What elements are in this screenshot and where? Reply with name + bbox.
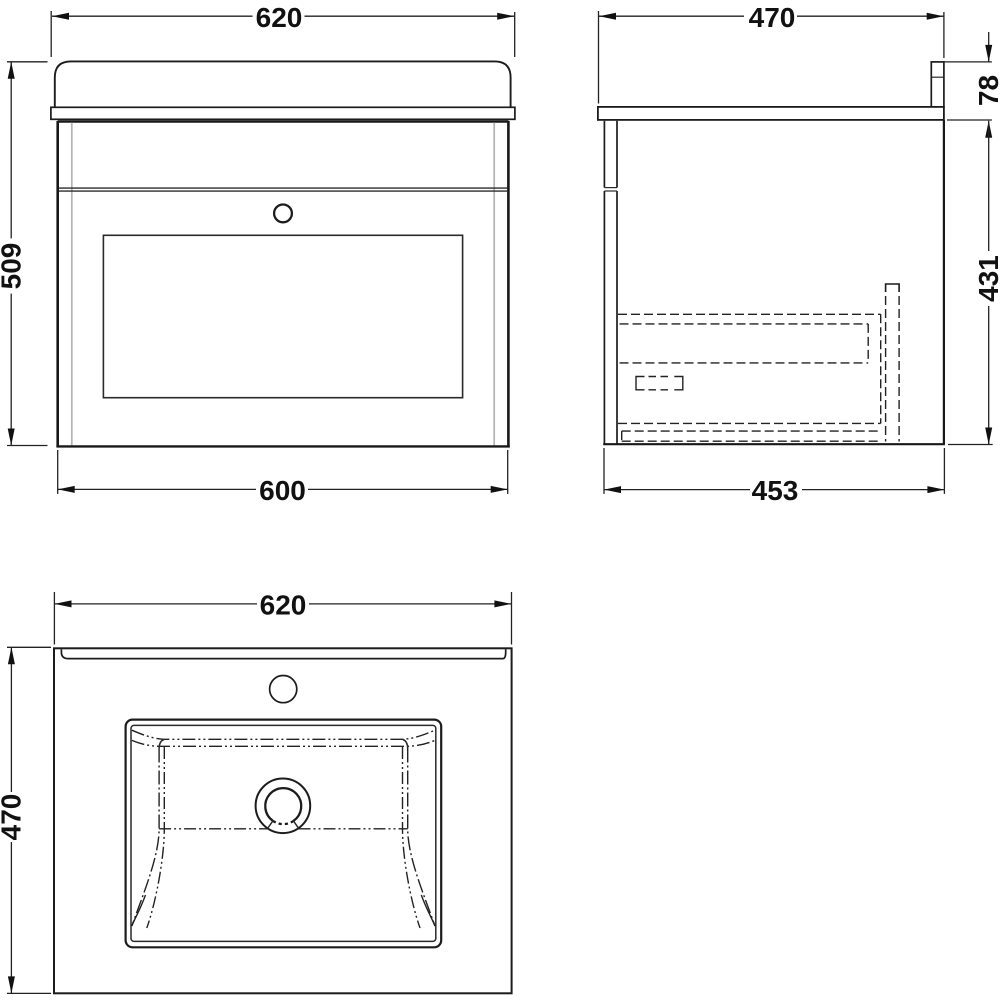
svg-text:78: 78 (973, 75, 1000, 106)
svg-text:453: 453 (752, 475, 799, 506)
svg-text:509: 509 (0, 243, 27, 290)
svg-text:620: 620 (256, 2, 303, 33)
svg-text:431: 431 (973, 255, 1000, 302)
svg-text:470: 470 (0, 794, 27, 841)
svg-text:470: 470 (749, 2, 796, 33)
svg-text:600: 600 (259, 475, 306, 506)
svg-text:620: 620 (260, 590, 307, 621)
